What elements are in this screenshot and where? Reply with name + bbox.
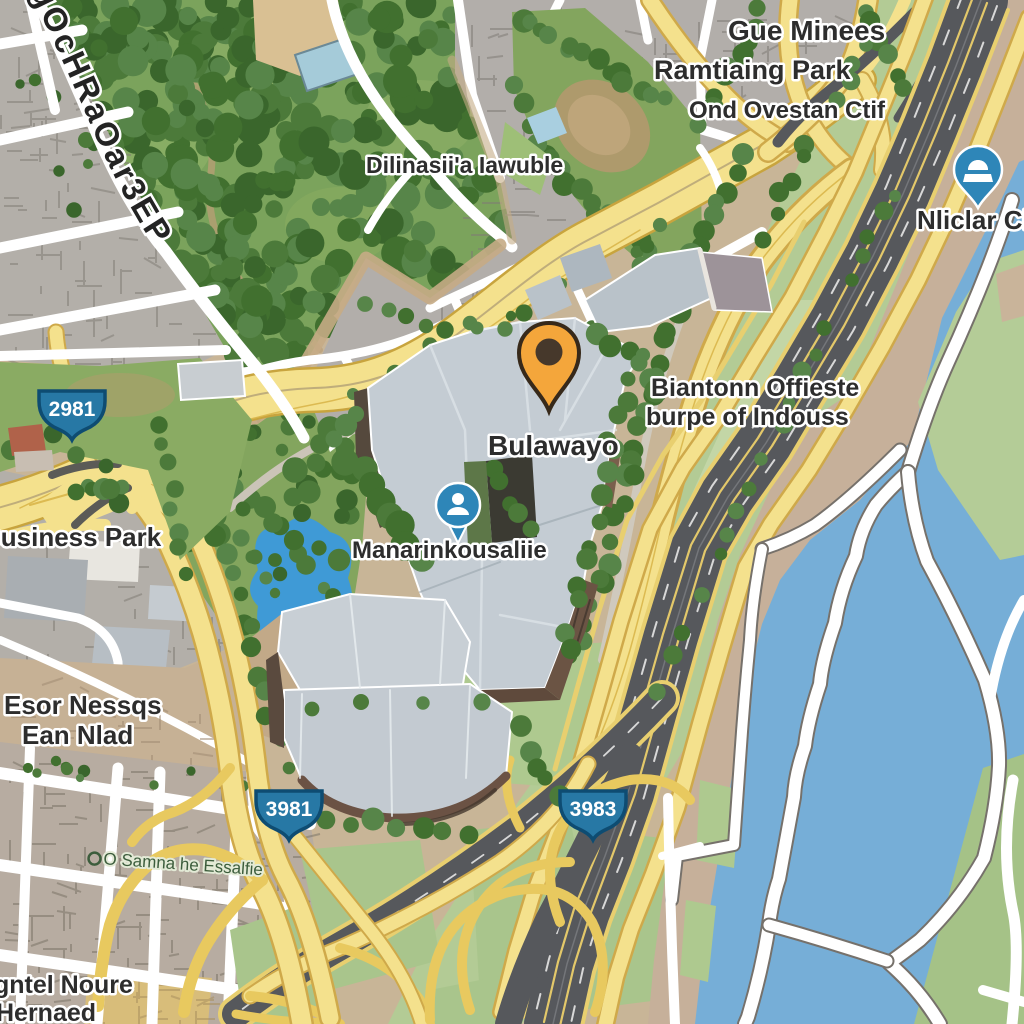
svg-text:Bulawayo: Bulawayo: [488, 430, 619, 461]
svg-text:Biantonn Offieste: Biantonn Offieste: [651, 374, 859, 402]
svg-text:Gue Minees: Gue Minees: [728, 15, 885, 46]
svg-text:3981: 3981: [266, 798, 313, 821]
svg-text:Ean Nlad: Ean Nlad: [22, 720, 133, 750]
svg-text:Business Park: Business Park: [0, 522, 162, 552]
svg-text:burpe of Indouss: burpe of Indouss: [646, 403, 849, 431]
svg-text:Nliclar Cif: Nliclar Cif: [917, 205, 1024, 235]
svg-text:2981: 2981: [49, 398, 96, 421]
svg-text:Ramtiaing Park: Ramtiaing Park: [654, 55, 852, 85]
svg-text:gntel Noure: gntel Noure: [0, 971, 133, 999]
svg-text:Hernaed: Hernaed: [0, 999, 96, 1024]
svg-text:3983: 3983: [570, 798, 617, 821]
svg-text:Ond Ovestan Ctif: Ond Ovestan Ctif: [689, 97, 886, 124]
svg-text:Dilinasii'a Iawuble: Dilinasii'a Iawuble: [366, 152, 563, 178]
svg-text:Manarinkousaliie: Manarinkousaliie: [352, 537, 547, 564]
svg-text:Esor Nessqs: Esor Nessqs: [4, 690, 162, 720]
